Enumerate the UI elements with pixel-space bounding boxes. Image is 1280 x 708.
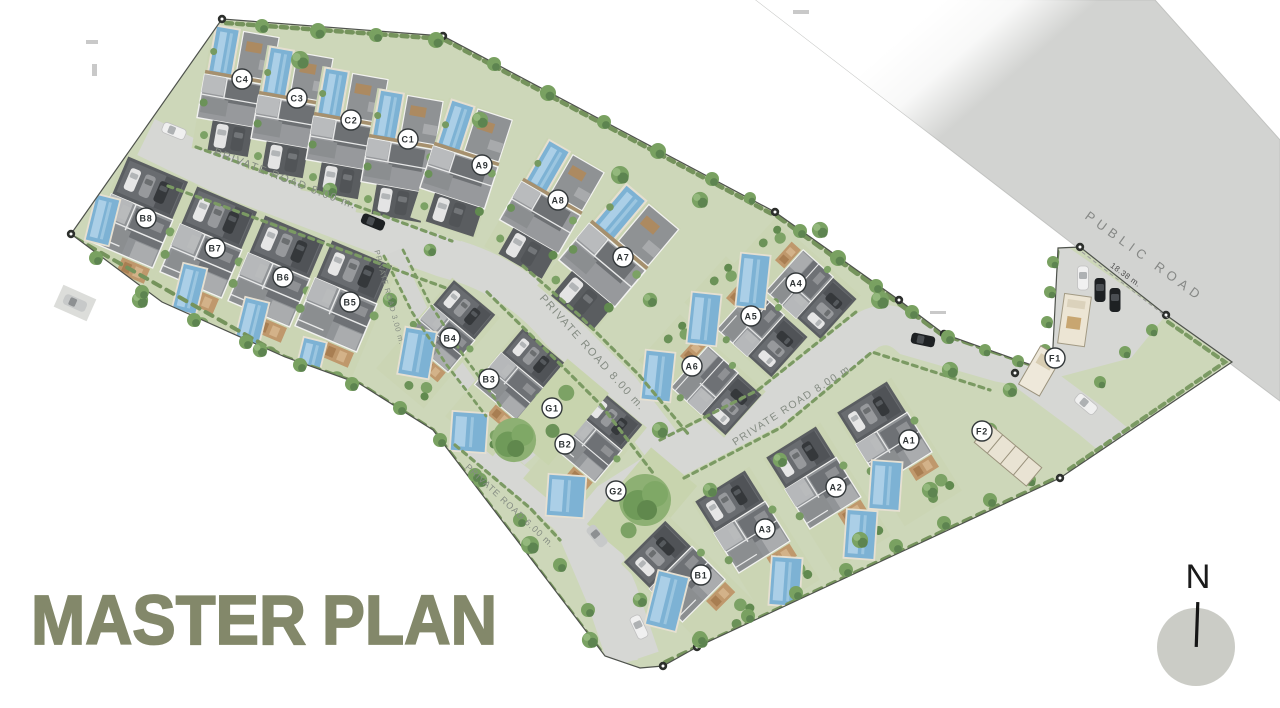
svg-text:A6: A6	[686, 361, 699, 371]
svg-text:A4: A4	[790, 278, 803, 288]
svg-text:A7: A7	[617, 252, 630, 262]
svg-text:A3: A3	[759, 524, 772, 534]
svg-text:C1: C1	[402, 134, 415, 144]
svg-text:A2: A2	[830, 482, 843, 492]
svg-text:C2: C2	[345, 115, 358, 125]
svg-text:B6: B6	[277, 272, 290, 282]
svg-text:PLAN: PLAN	[322, 581, 497, 659]
svg-text:B5: B5	[344, 297, 357, 307]
svg-text:C4: C4	[236, 74, 249, 84]
svg-text:A5: A5	[745, 311, 758, 321]
svg-text:A9: A9	[476, 160, 489, 170]
svg-text:G1: G1	[545, 403, 558, 413]
svg-text:B1: B1	[695, 570, 708, 580]
svg-text:N: N	[1186, 558, 1211, 596]
svg-text:A8: A8	[552, 195, 565, 205]
svg-text:B7: B7	[209, 243, 222, 253]
svg-text:B4: B4	[444, 333, 457, 343]
svg-text:F2: F2	[976, 426, 988, 436]
svg-text:B2: B2	[559, 439, 572, 449]
svg-text:A1: A1	[903, 435, 916, 445]
svg-text:B3: B3	[483, 374, 496, 384]
svg-text:MASTER: MASTER	[31, 581, 306, 659]
svg-text:C3: C3	[291, 93, 304, 103]
svg-text:B8: B8	[140, 213, 153, 223]
svg-text:F1: F1	[1049, 353, 1061, 363]
svg-text:G2: G2	[609, 486, 622, 496]
